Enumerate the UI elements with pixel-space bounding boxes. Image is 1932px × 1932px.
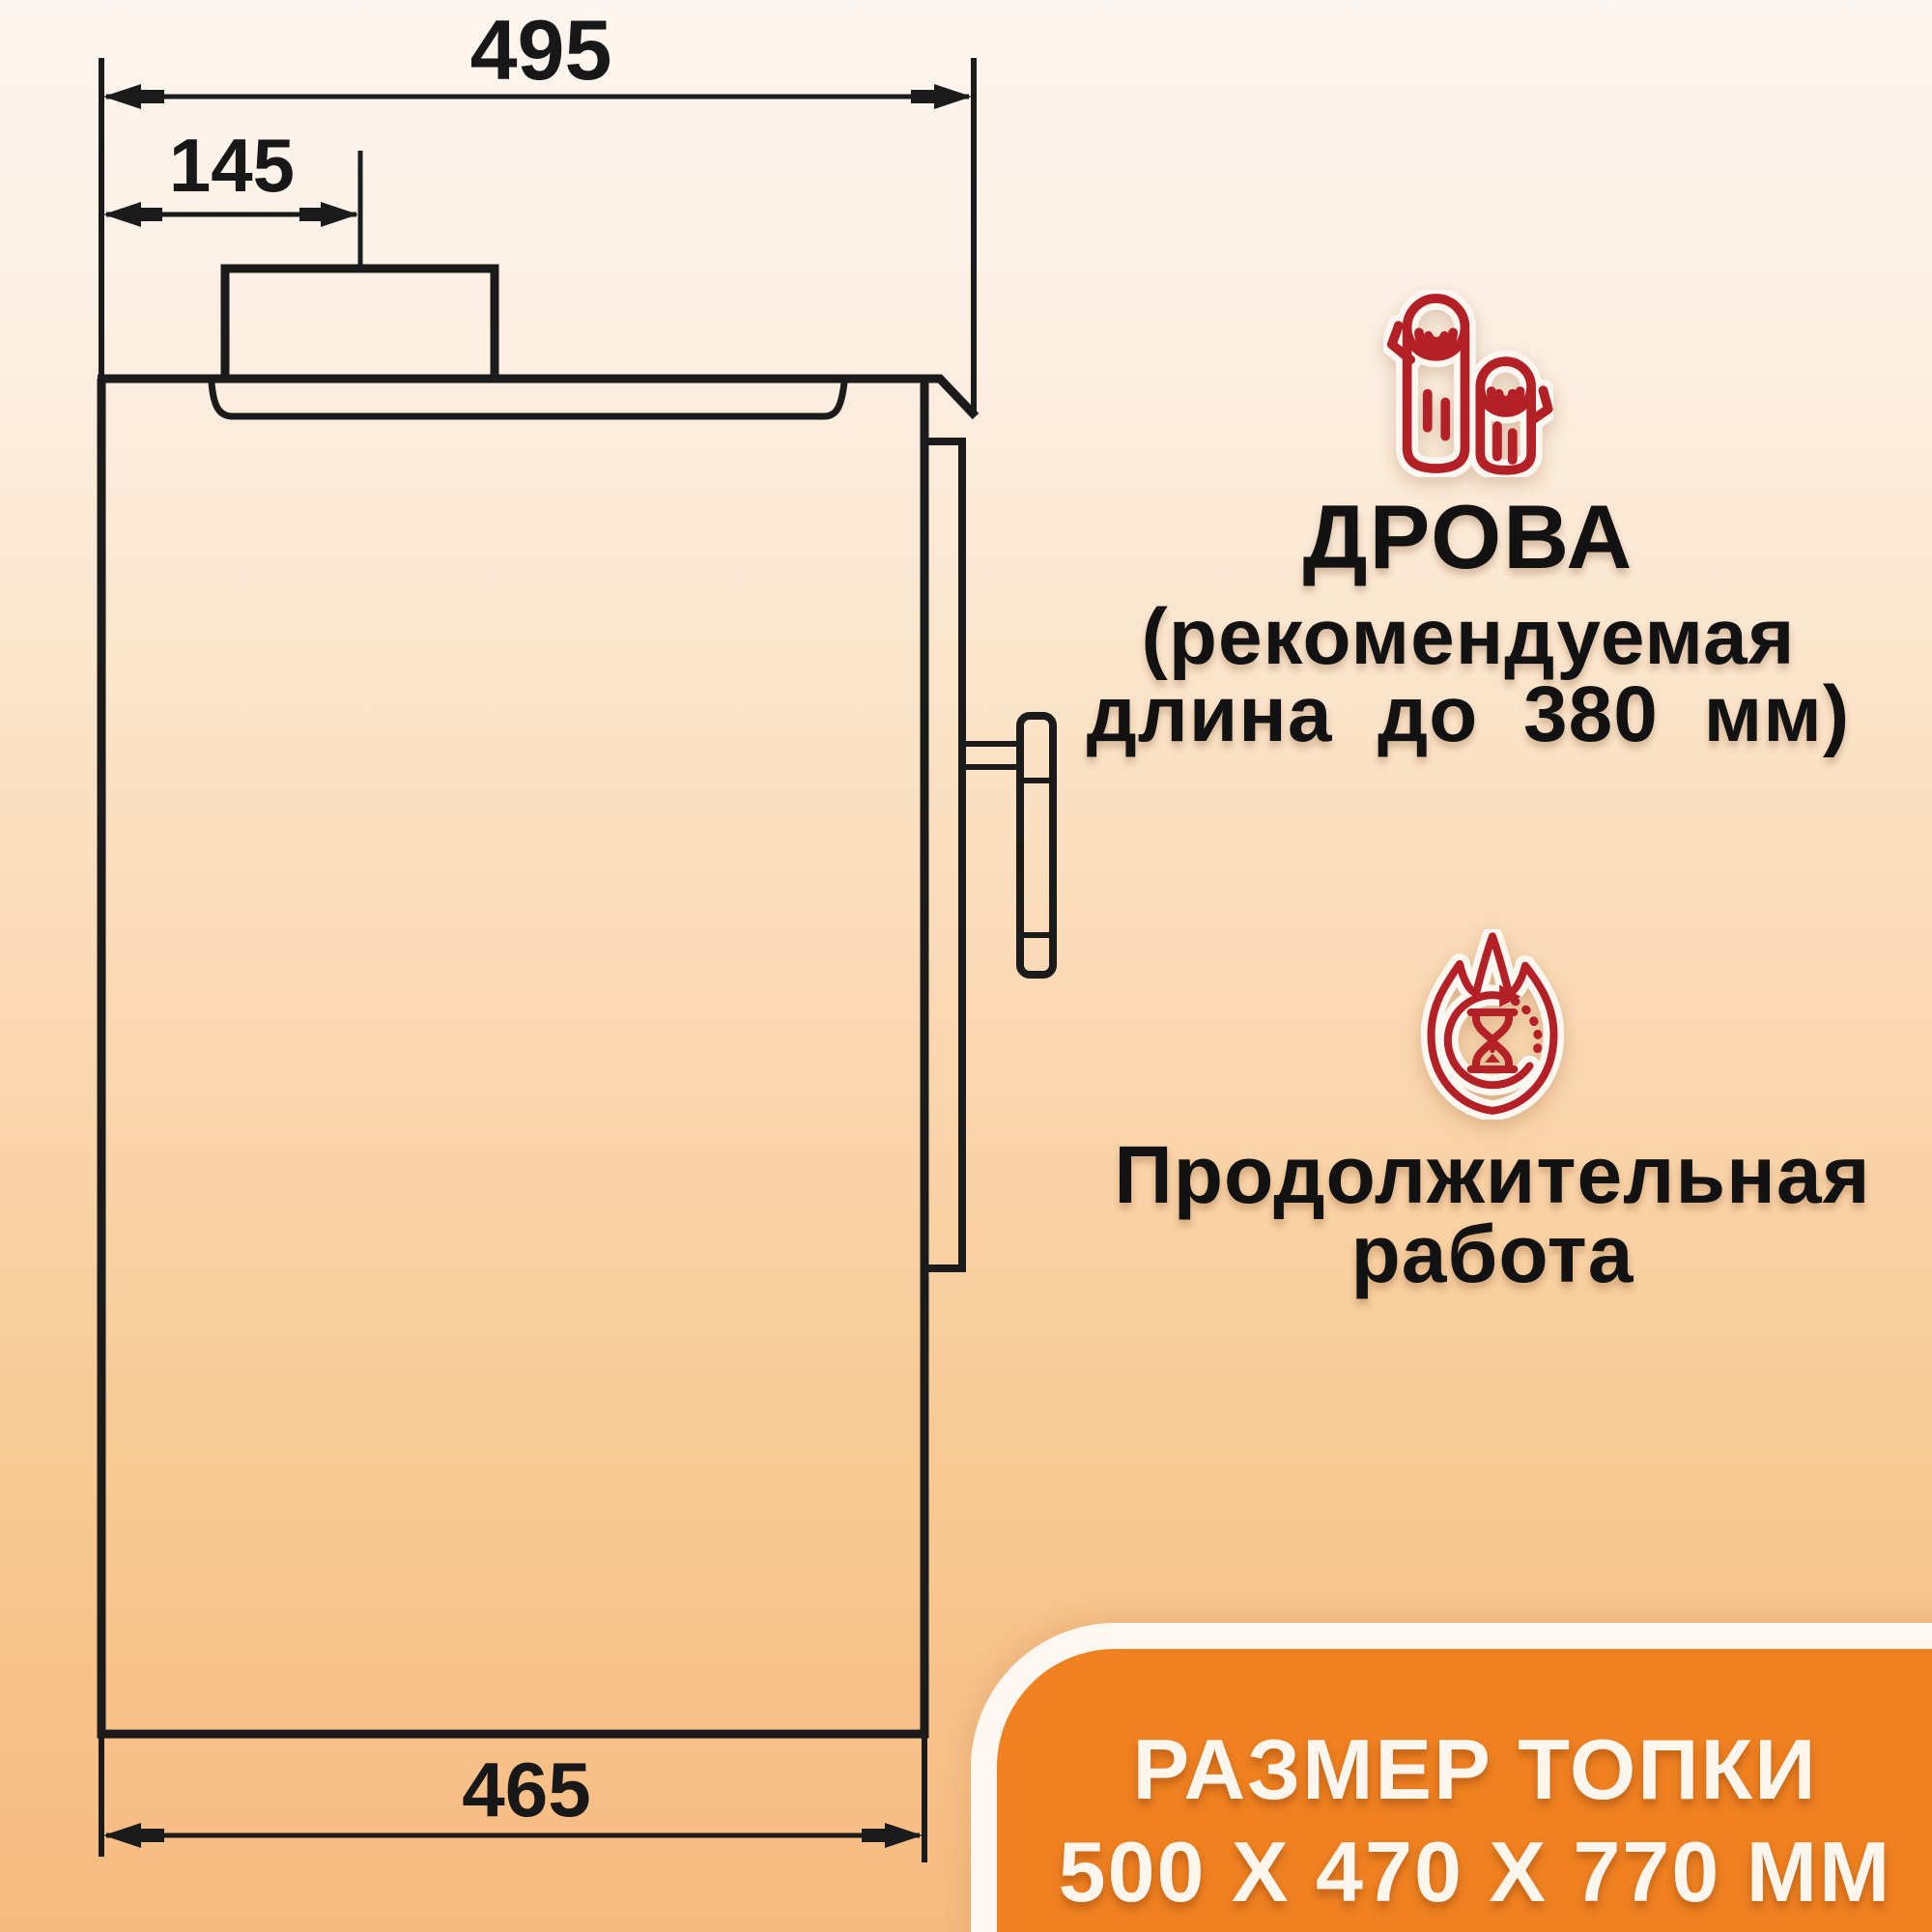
feature-long-operation-line2: работа (1351, 1208, 1634, 1299)
firebox-size-text: РАЗМЕР ТОПКИ 500 Х 470 Х 770 ММ (1016, 1719, 1932, 1922)
flame-hourglass-icon (1419, 929, 1566, 1120)
dim-465-label: 465 (462, 1747, 590, 1833)
feature-long-operation-label: Продолжительная работа (1038, 1135, 1932, 1294)
chimney-stub (225, 269, 495, 379)
door-handle-lines (1020, 781, 1053, 935)
feature-long-operation: Продолжительная работа (1038, 929, 1932, 1294)
feature-firewood-title: ДРОВА (1024, 485, 1913, 589)
feature-firewood: ДРОВА (рекомендуемая длина до 380 мм) (1024, 290, 1913, 753)
firebox-size-banner: РАЗМЕР ТОПКИ 500 Х 470 Х 770 ММ (971, 1623, 1932, 1932)
firebox-size-line2: 500 Х 470 Х 770 ММ (1016, 1821, 1932, 1923)
firebox-size-line1: РАЗМЕР ТОПКИ (1016, 1719, 1932, 1821)
dim-495-label: 495 (470, 2, 612, 98)
door-handle-bracket (962, 744, 1020, 767)
feature-firewood-subtitle-line1: (рекомендуемая (1142, 593, 1796, 681)
feature-firewood-subtitle: (рекомендуемая длина до 380 мм) (1024, 599, 1913, 753)
top-lid-recess (212, 383, 844, 416)
dimension-overall-width: 495 (103, 2, 972, 109)
stove-infographic: 495 145 (0, 0, 1932, 1932)
extension-lines (101, 58, 974, 1862)
side-door-panel (924, 441, 962, 1268)
firebox-size-banner-background: РАЗМЕР ТОПКИ 500 Х 470 Х 770 ММ (997, 1649, 1932, 1932)
stove-body (101, 379, 924, 1734)
feature-long-operation-line1: Продолжительная (1114, 1129, 1870, 1220)
firewood-logs-icon (1383, 290, 1553, 477)
dimension-base-width: 465 (103, 1747, 923, 1848)
dimension-chimney-offset: 145 (103, 123, 358, 227)
feature-firewood-subtitle-line2: длина до 380 мм) (1087, 670, 1851, 758)
dim-145-label: 145 (169, 123, 295, 208)
stove-outline (98, 269, 1053, 1734)
